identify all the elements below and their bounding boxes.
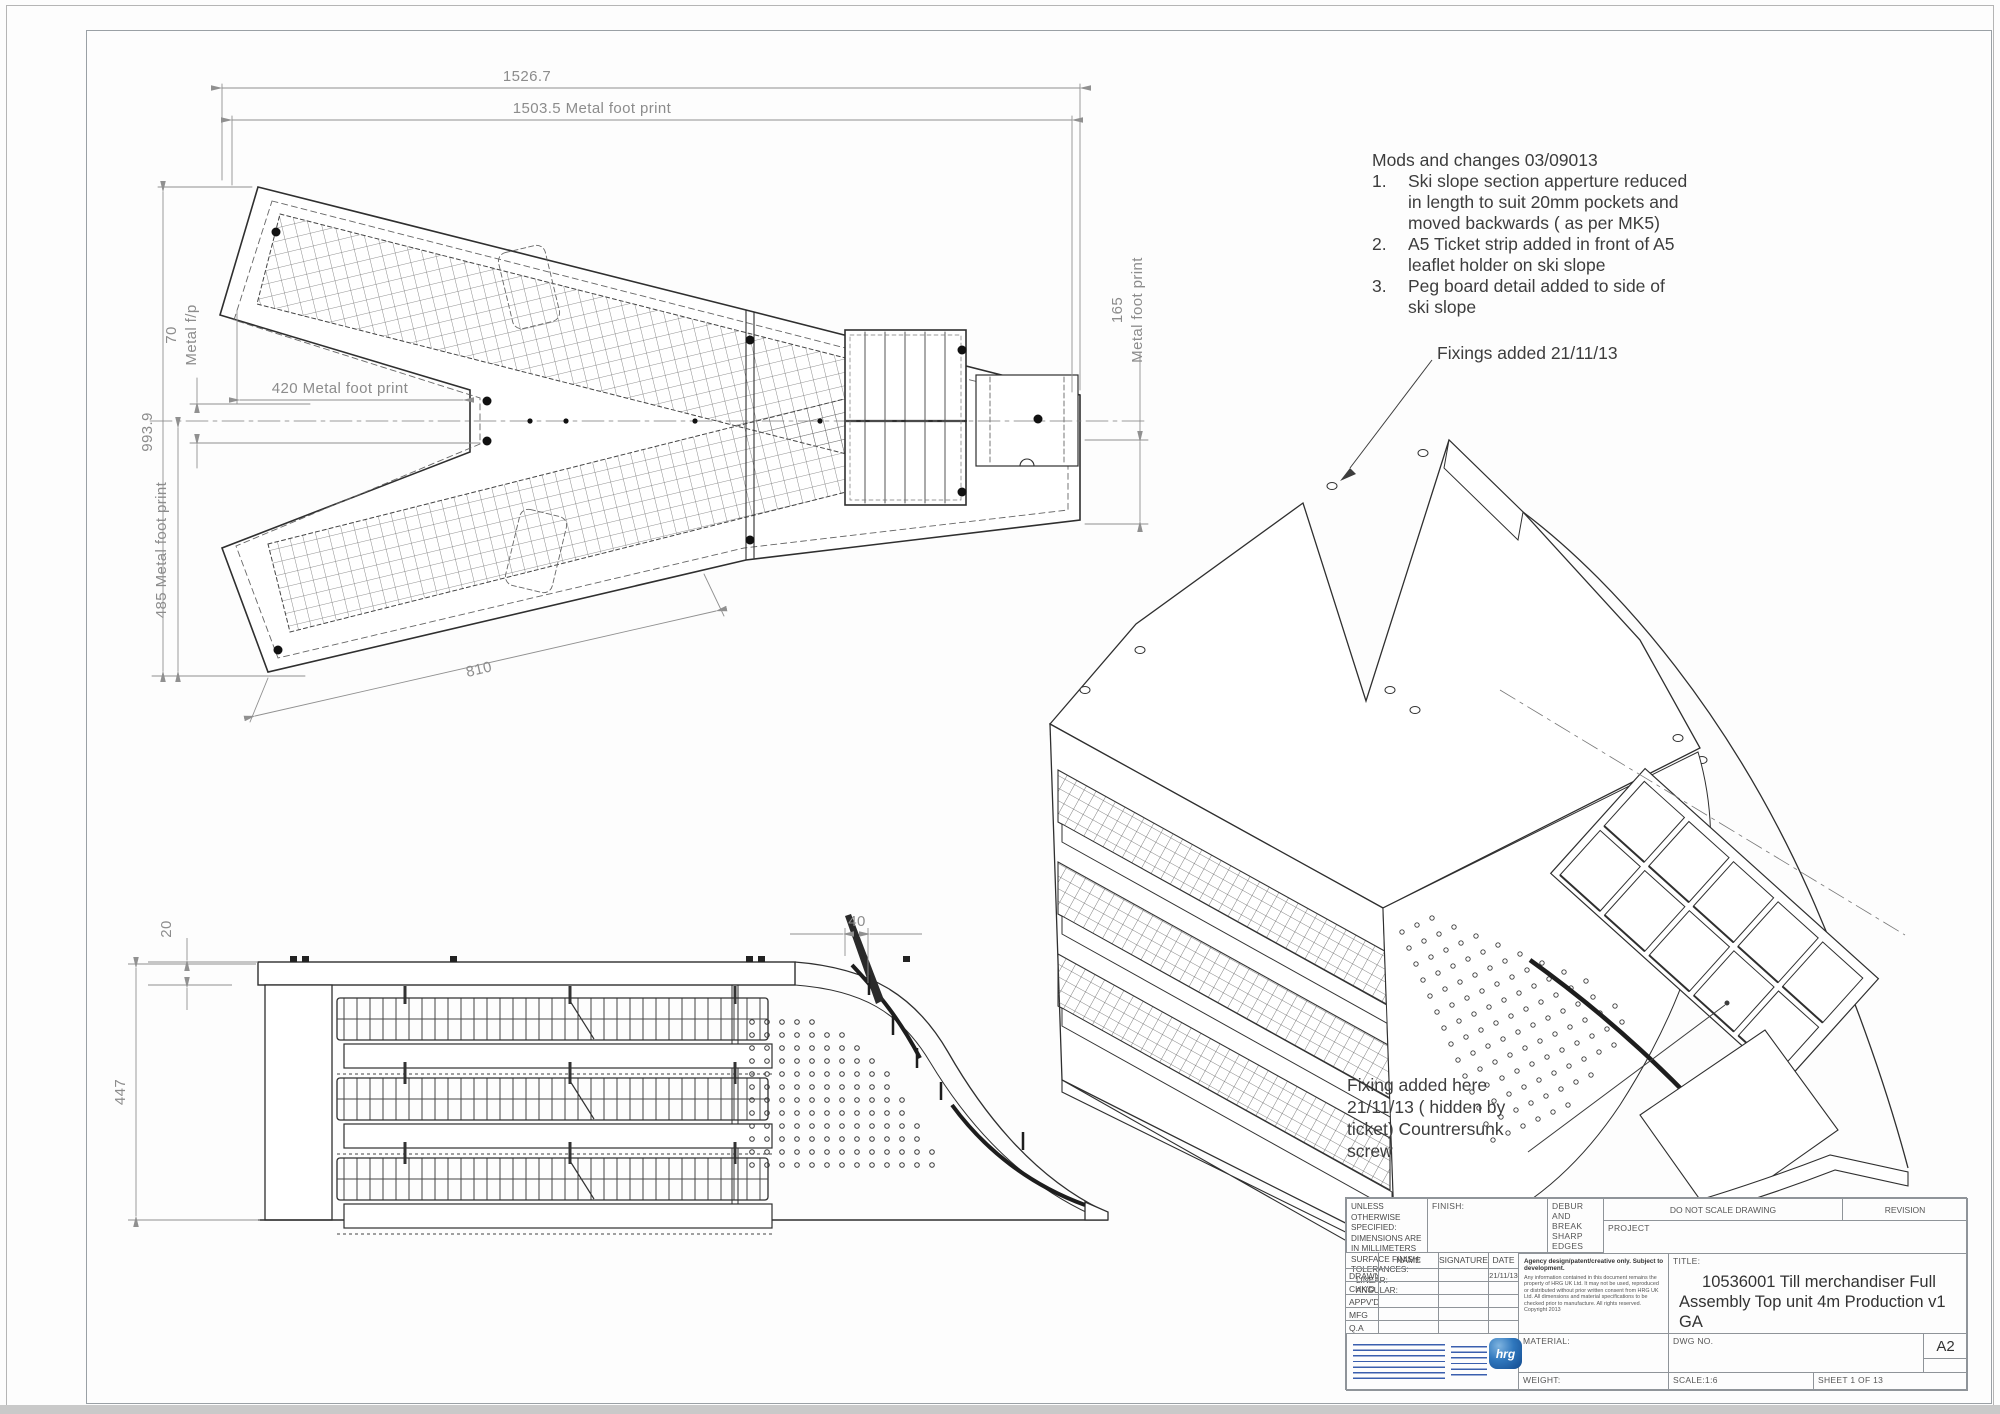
dwg-no-label: DWG NO. xyxy=(1669,1334,1923,1346)
mods-note-1: 1. Ski slope section apperture reduced i… xyxy=(1372,171,1690,234)
page-bottom-edge xyxy=(0,1405,2000,1414)
elev-top-slab xyxy=(258,962,795,985)
do-not-scale-cell: DO NOT SCALE DRAWING xyxy=(1603,1198,1843,1221)
company-smallprint-right xyxy=(1451,1344,1487,1378)
approval-row-drawn: DRAWN xyxy=(1346,1269,1379,1282)
do-not-scale-label: DO NOT SCALE DRAWING xyxy=(1604,1199,1842,1215)
dim-slope-gap: 40 xyxy=(848,913,866,930)
dim-notch-depth: 420 Metal foot print xyxy=(272,380,409,397)
dim-notch-offset-unit: Metal f/p xyxy=(183,304,200,365)
revision-cell: REVISION xyxy=(1842,1198,1968,1221)
drawing-title-line: 10536001 Till merchandiser Full xyxy=(1679,1272,1959,1292)
paper-size-sub-cell xyxy=(1923,1358,1968,1373)
project-cell: PROJECT xyxy=(1603,1220,1968,1254)
project-label: PROJECT xyxy=(1604,1221,1967,1233)
dim-top-thickness: 20 xyxy=(158,920,175,938)
disclaimer-cell: Agency design/patent/creative only. Subj… xyxy=(1518,1253,1669,1334)
dim-notch-offset: 70 xyxy=(163,326,180,344)
disclaimer-body: Any information contained in this docume… xyxy=(1524,1275,1664,1313)
plan-view: 1526.7 1503.5 Metal foot print 993.9 70 … xyxy=(139,68,1148,722)
debur-label: DEBUR AND BREAK SHARP EDGES xyxy=(1548,1199,1603,1251)
approval-row-appvd: APPV'D xyxy=(1346,1295,1379,1308)
fixings-added-annotation: Fixings added 21/11/13 xyxy=(1437,342,1618,364)
title-label: TITLE: xyxy=(1669,1254,1967,1266)
spec-cell: UNLESS OTHERWISE SPECIFIED: DIMENSIONS A… xyxy=(1346,1198,1428,1253)
elev-slab-bolts xyxy=(290,956,910,962)
mods-note-3: 3. Peg board detail added to side of ski… xyxy=(1372,276,1690,318)
drawn-date: 21/11/13 xyxy=(1489,1269,1519,1282)
dim-elev-height: 447 xyxy=(112,1079,129,1105)
elev-pegboard-dots xyxy=(750,1020,935,1168)
company-smallprint-left xyxy=(1353,1342,1445,1382)
weight-cell: WEIGHT: xyxy=(1518,1372,1669,1391)
material-label: MATERIAL: xyxy=(1519,1334,1668,1346)
hrg-logo: hrg xyxy=(1489,1338,1522,1369)
annotation-line: Fixing added here xyxy=(1347,1074,1505,1096)
elev-ticket-strip xyxy=(845,914,1085,1205)
dim-overall-width: 1526.7 xyxy=(503,68,551,85)
note-number: 1. xyxy=(1372,171,1408,234)
approval-table: NAME SIGNATURE DATE DRAWN 21/11/13 CHK'D… xyxy=(1346,1253,1519,1334)
annotation-line: ticket) Countrersunk xyxy=(1347,1118,1505,1140)
material-cell: MATERIAL: xyxy=(1518,1333,1669,1373)
note-number: 3. xyxy=(1372,276,1408,318)
dim-overall-height: 993.9 xyxy=(139,412,156,452)
approval-header-name: NAME xyxy=(1379,1253,1439,1269)
title-cell: TITLE: 10536001 Till merchandiser Full A… xyxy=(1668,1253,1968,1334)
dim-right-width: 165 xyxy=(1109,297,1126,323)
finish-cell: FINISH: xyxy=(1427,1198,1548,1253)
dwg-no-cell: DWG NO. xyxy=(1668,1333,1924,1373)
dim-footprint-width: 1503.5 Metal foot print xyxy=(513,100,672,117)
annotation-line: screw xyxy=(1347,1140,1505,1162)
weight-label: WEIGHT: xyxy=(1519,1373,1668,1385)
dim-arm-length: 810 xyxy=(464,658,493,680)
elev-basket-rows xyxy=(337,986,772,1234)
approval-row-chkd: CHK'D xyxy=(1346,1282,1379,1295)
note-number: 2. xyxy=(1372,234,1408,276)
dim-right-width-unit: Metal foot print xyxy=(1129,257,1146,363)
note-text: Peg board detail added to side of ski sl… xyxy=(1408,276,1690,318)
approval-header-signature: SIGNATURE xyxy=(1439,1253,1489,1269)
note-text: A5 Ticket strip added in front of A5 lea… xyxy=(1408,234,1690,276)
plan-slat-box xyxy=(845,330,966,505)
elevation-view: 20 447 40 xyxy=(112,913,1108,1234)
note-text: Ski slope section apperture reduced in l… xyxy=(1408,171,1690,234)
revision-label: REVISION xyxy=(1843,1199,1967,1215)
paper-size-cell: A2 xyxy=(1923,1333,1968,1359)
fixing-added-here-annotation: Fixing added here 21/11/13 ( hidden by t… xyxy=(1347,1074,1505,1162)
elev-left-upright xyxy=(265,985,332,1220)
finish-label: FINISH: xyxy=(1428,1199,1547,1211)
approval-row-mfg: MFG xyxy=(1346,1308,1379,1321)
scale-cell: SCALE:1:6 xyxy=(1668,1372,1814,1391)
drawing-title-line: Assembly Top unit 4m Production v1 xyxy=(1679,1292,1959,1312)
disclaimer-heading: Agency design/patent/creative only. Subj… xyxy=(1524,1258,1664,1272)
mods-notes: Mods and changes 03/09013 1. Ski slope s… xyxy=(1372,150,1690,318)
spec-line: UNLESS OTHERWISE SPECIFIED: xyxy=(1351,1202,1427,1234)
scale-label: SCALE:1:6 xyxy=(1669,1373,1813,1385)
sheet-label: SHEET 1 OF 13 xyxy=(1814,1373,1967,1385)
mods-note-2: 2. A5 Ticket strip added in front of A5 … xyxy=(1372,234,1690,276)
sheet-cell: SHEET 1 OF 13 xyxy=(1813,1372,1968,1391)
drawing-title-line: GA xyxy=(1679,1312,1959,1332)
drawing-title: 10536001 Till merchandiser Full Assembly… xyxy=(1669,1266,1967,1332)
title-block: UNLESS OTHERWISE SPECIFIED: DIMENSIONS A… xyxy=(1345,1197,1967,1390)
plan-right-pocket xyxy=(976,375,1078,466)
spec-line: DIMENSIONS ARE IN MILLIMETERS xyxy=(1351,1234,1427,1255)
debur-cell: DEBUR AND BREAK SHARP EDGES xyxy=(1547,1198,1604,1253)
approval-header-date: DATE xyxy=(1489,1253,1519,1269)
mods-notes-title: Mods and changes 03/09013 xyxy=(1372,150,1690,171)
annotation-line: 21/11/13 ( hidden by xyxy=(1347,1096,1505,1118)
dim-arm-footprint: 485 Metal foot print xyxy=(153,481,170,618)
drawing-sheet: 1526.7 1503.5 Metal foot print 993.9 70 … xyxy=(0,0,2000,1414)
